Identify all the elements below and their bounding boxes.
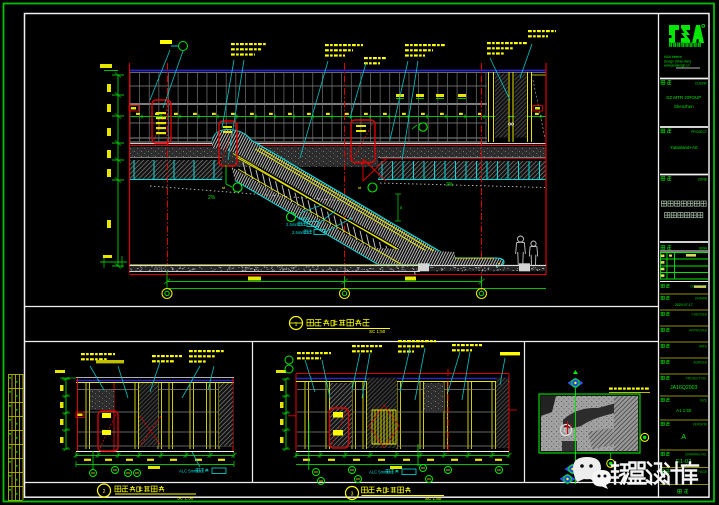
svg-text:Shenzhen: Shenzhen	[674, 104, 694, 109]
svg-text:SZ MTR GROUP: SZ MTR GROUP	[666, 95, 701, 100]
svg-text:A: A	[681, 434, 686, 441]
svg-text:SIGN: SIGN	[699, 247, 708, 251]
svg-text:1: 1	[295, 322, 298, 328]
svg-text:DATE: DATE	[699, 345, 707, 349]
svg-text:x: x	[570, 422, 572, 427]
svg-text:CHECKED: CHECKED	[691, 313, 707, 317]
svg-text:VERSION: VERSION	[693, 423, 708, 427]
svg-text:SC 1:50: SC 1:50	[177, 496, 194, 501]
svg-text:2%: 2%	[446, 182, 454, 188]
svg-text:2%: 2%	[208, 195, 216, 201]
svg-text:2.5mm: 2.5mm	[292, 230, 305, 235]
svg-text:www.jnadesign.cn: www.jnadesign.cn	[664, 64, 690, 68]
svg-text:ALC 5mm: ALC 5mm	[179, 469, 198, 474]
svg-text:A1 1:50: A1 1:50	[676, 408, 692, 413]
svg-text:JA16Q2003: JA16Q2003	[670, 385, 698, 391]
svg-text:APPROVED: APPROVED	[689, 329, 707, 333]
svg-text:st400: st400	[298, 216, 310, 221]
svg-text:Yutanland+Art: Yutanland+Art	[670, 145, 698, 150]
svg-text:SC 1:50: SC 1:50	[425, 496, 442, 501]
svg-text:DRAWN: DRAWN	[695, 297, 708, 301]
svg-text:AGREED: AGREED	[694, 361, 708, 365]
svg-text:CLIENT: CLIENT	[695, 82, 707, 86]
svg-text:2020.07.17: 2020.07.17	[675, 303, 693, 307]
svg-text:3: 3	[351, 492, 354, 498]
svg-text:SIZE: SIZE	[700, 399, 707, 403]
svg-text:PROJECT: PROJECT	[691, 130, 707, 134]
svg-text:SC 1:50: SC 1:50	[369, 329, 386, 334]
svg-text:ALC 5mm: ALC 5mm	[369, 470, 388, 475]
svg-text:2: 2	[103, 489, 106, 495]
svg-text:PAGE: PAGE	[698, 470, 707, 474]
svg-text:PROJECT NO.: PROJECT NO.	[686, 377, 707, 381]
svg-text:ZONE: ZONE	[698, 178, 708, 182]
svg-text:DRAWING NO.: DRAWING NO.	[685, 453, 707, 457]
svg-text:2.5mm: 2.5mm	[286, 222, 299, 227]
